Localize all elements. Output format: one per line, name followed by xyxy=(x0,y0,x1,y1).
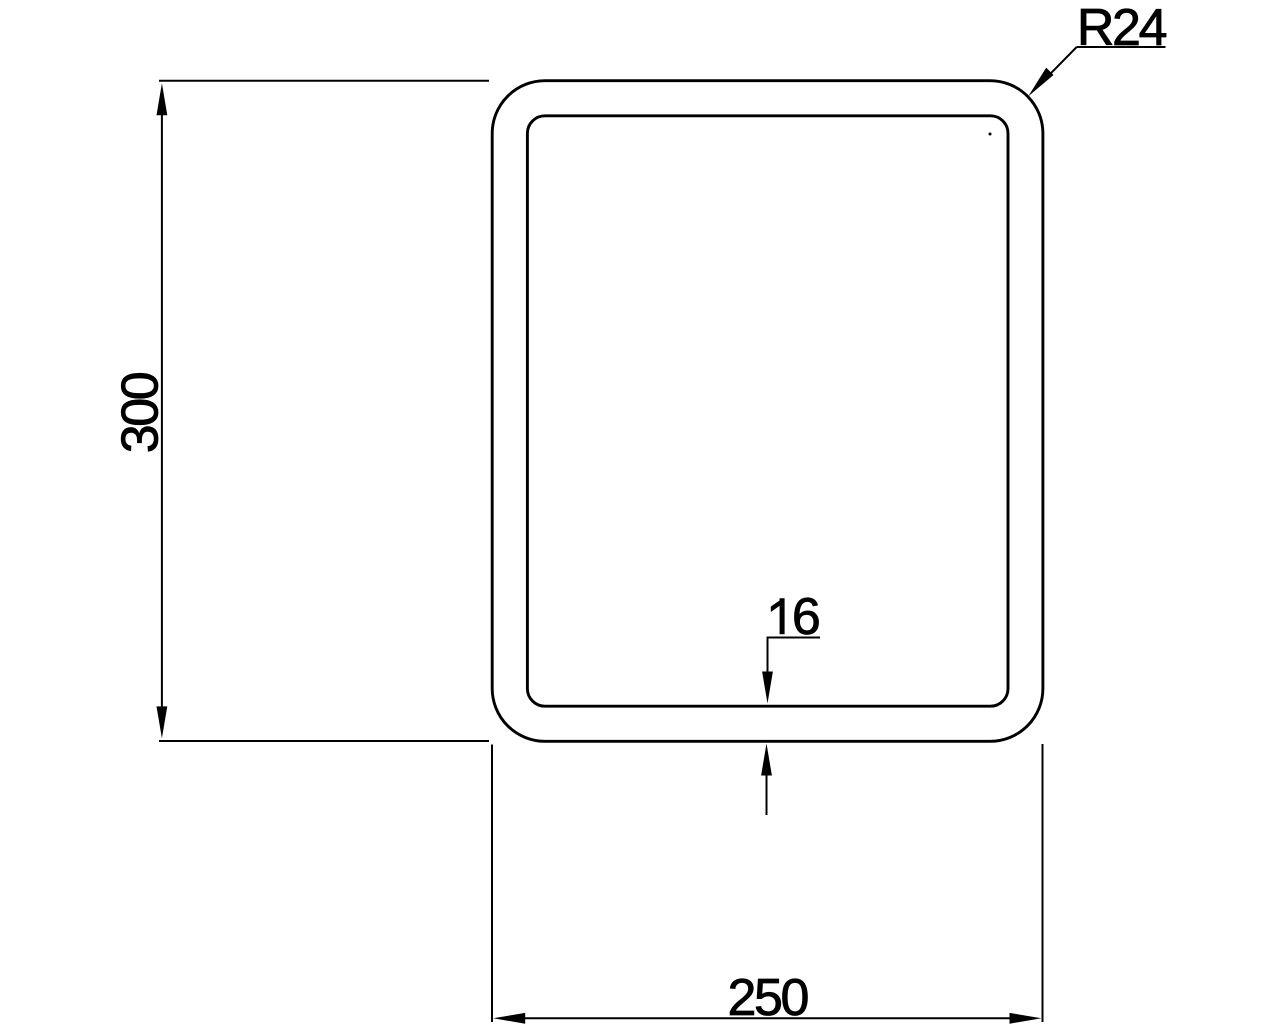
svg-text:6: 6 xyxy=(792,588,821,646)
svg-text:300: 300 xyxy=(112,373,170,453)
svg-text:R24: R24 xyxy=(1077,0,1167,57)
svg-text:250: 250 xyxy=(728,969,808,1024)
